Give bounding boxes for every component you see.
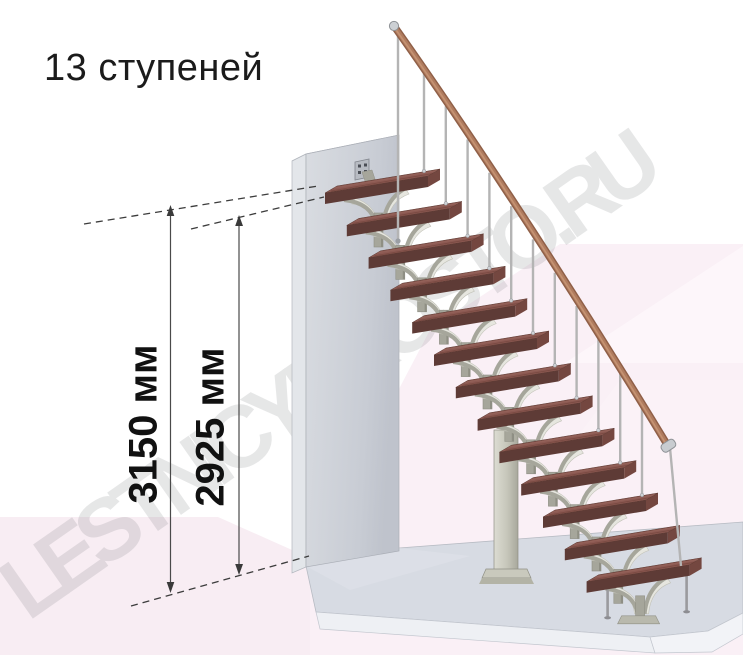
- handrail-top-cap: [389, 21, 398, 30]
- dim-label-total-height: 3150 мм: [122, 344, 166, 503]
- page-title: 13 ступеней: [44, 47, 263, 89]
- baluster-socket: [618, 461, 622, 465]
- dim-label-to-top-tread: 2925 мм: [189, 347, 233, 506]
- baluster-socket: [597, 428, 601, 432]
- baluster-socket: [640, 493, 644, 497]
- baluster-socket: [444, 202, 448, 206]
- wall-end-post-foot: [395, 238, 400, 243]
- baluster-socket: [509, 299, 513, 303]
- staircase-diagram: LESTNICYPROSTO.RU: [0, 0, 743, 655]
- baluster-socket: [531, 331, 535, 335]
- baluster-socket: [575, 396, 579, 400]
- column-base-foot: [479, 578, 534, 584]
- baluster-socket: [466, 234, 470, 238]
- tread-leg-left-foot: [604, 616, 611, 619]
- baluster-socket: [488, 266, 492, 270]
- baluster-socket: [422, 169, 426, 173]
- bracket-base-plate: [618, 616, 660, 624]
- baluster-socket: [553, 364, 557, 368]
- tread-leg-right-foot: [683, 610, 690, 613]
- column-base-plate: [482, 569, 531, 578]
- wall-side-face: [292, 154, 306, 573]
- bracket-stem: [636, 596, 645, 618]
